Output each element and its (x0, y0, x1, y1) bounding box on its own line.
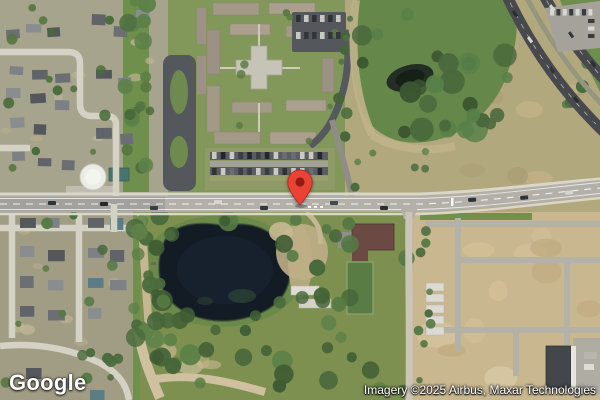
tree-canopy (371, 28, 383, 40)
parked-car (328, 32, 333, 39)
dirt-patch (145, 57, 154, 64)
tree-canopy (274, 365, 293, 384)
tree-canopy (424, 309, 432, 317)
tree-canopy (165, 230, 176, 241)
parked-car (247, 152, 252, 159)
parked-car (588, 9, 592, 16)
tree-canopy (86, 348, 95, 357)
car (520, 195, 528, 200)
parked-car (296, 15, 301, 22)
tree-canopy (41, 217, 53, 229)
tree-canopy (118, 79, 133, 94)
tree-canopy (502, 72, 513, 83)
tree-canopy (69, 211, 77, 219)
tree-canopy (156, 295, 170, 309)
parked-car (265, 152, 270, 159)
tree-canopy (411, 79, 427, 95)
car (330, 201, 338, 205)
tree-canopy (457, 122, 474, 139)
house-roof (9, 66, 23, 75)
car (380, 206, 388, 210)
parked-car (221, 152, 226, 159)
tree-canopy (362, 361, 379, 378)
tree-canopy (146, 106, 155, 115)
parked-car (563, 9, 567, 16)
tree-canopy (124, 109, 135, 120)
parked-car (556, 9, 560, 16)
tree-canopy (105, 355, 117, 367)
satellite-map[interactable]: Google Imagery ©2025 Airbus, Maxar Techn… (0, 0, 600, 400)
tree-canopy (416, 248, 426, 258)
house-roof (20, 246, 34, 257)
tree-canopy (7, 34, 18, 45)
tree-canopy (490, 108, 504, 122)
tree-canopy (96, 65, 106, 75)
house-roof (96, 128, 112, 139)
dirt-patch (489, 280, 508, 301)
dirt-patch (438, 344, 466, 357)
tree-canopy (140, 81, 151, 92)
tree-canopy (105, 16, 114, 25)
tree-canopy (148, 240, 164, 256)
tree-canopy (107, 260, 118, 271)
tree-canopy (321, 315, 336, 330)
tree-canopy (28, 4, 36, 12)
tree-canopy (421, 226, 431, 236)
parked-car (274, 152, 279, 159)
tree-canopy (9, 164, 17, 172)
house-roof (88, 278, 104, 288)
tree-canopy (236, 122, 243, 129)
parked-car (238, 168, 243, 175)
tree-canopy (287, 250, 299, 262)
tree-canopy (352, 25, 372, 45)
parked-car (336, 32, 341, 39)
tree-canopy (237, 70, 246, 79)
tree-canopy (165, 358, 181, 374)
parked-car (304, 32, 309, 39)
parked-car (312, 15, 317, 22)
house-roof (20, 306, 34, 317)
tree-canopy (351, 183, 360, 192)
tree-canopy (426, 288, 433, 295)
vertical-road (409, 212, 410, 400)
house-roof (26, 24, 42, 33)
parked-car (320, 15, 325, 22)
tree-canopy (90, 149, 96, 155)
tree-canopy (342, 217, 355, 230)
tree-canopy (290, 214, 302, 226)
tree-canopy (126, 328, 145, 347)
tree-canopy (315, 293, 330, 308)
tree-canopy (240, 325, 251, 336)
tree-canopy (369, 150, 376, 157)
tree-canopy (410, 118, 434, 142)
tree-canopy (327, 104, 333, 110)
tree-canopy (97, 245, 107, 255)
tree-canopy (421, 165, 429, 173)
parked-car (312, 32, 317, 39)
tree-canopy (46, 76, 53, 83)
tree-canopy (466, 108, 480, 122)
tree-canopy (53, 85, 63, 95)
tree-canopy (131, 223, 148, 240)
tree-canopy (128, 303, 139, 314)
car (565, 190, 573, 195)
parked-car (569, 9, 573, 16)
parked-car (256, 152, 261, 159)
tree-canopy (398, 126, 411, 139)
pin-body (288, 170, 312, 205)
tree-canopy (421, 238, 430, 247)
imagery-attribution: Imagery ©2025 Airbus, Maxar Technologies (364, 383, 596, 397)
tree-canopy (39, 16, 48, 25)
house-roof (88, 218, 104, 228)
tree-canopy (145, 330, 164, 349)
parked-car (300, 152, 305, 159)
tree-canopy (138, 158, 153, 173)
tree-canopy (164, 333, 177, 346)
tree-canopy (459, 53, 480, 74)
tree-canopy (261, 345, 272, 356)
tree-canopy (338, 59, 344, 65)
map-pin-icon[interactable] (287, 169, 313, 206)
tree-canopy (420, 340, 428, 348)
tree-canopy (43, 265, 50, 272)
tree-canopy (180, 344, 201, 365)
tree-canopy (341, 107, 353, 119)
tree-canopy (275, 235, 293, 253)
tree-canopy (119, 14, 137, 32)
tree-canopy (329, 229, 342, 242)
tree-canopy (99, 110, 110, 121)
dirt-patch (32, 263, 42, 269)
parked-car (309, 152, 314, 159)
house-roof (10, 117, 25, 128)
tree-canopy (322, 342, 333, 353)
loop-road-lot (163, 55, 196, 191)
tree-canopy (354, 159, 361, 166)
parked-car (212, 152, 217, 159)
tree-canopy (411, 163, 419, 171)
tree-canopy (422, 148, 429, 155)
house-roof (120, 133, 133, 145)
house-roof (6, 88, 21, 98)
house-roof (55, 100, 70, 110)
parked-car (230, 168, 235, 175)
parked-car (328, 15, 333, 22)
house-roof (34, 124, 47, 135)
tree-canopy (149, 350, 164, 365)
house-roof (20, 276, 34, 288)
tree-canopy (340, 45, 350, 55)
tree-canopy (332, 297, 347, 312)
dirt-patch (507, 167, 528, 184)
dirt-patch (30, 136, 42, 141)
parked-car (221, 168, 226, 175)
pin-inner-dot (295, 177, 304, 186)
tree-canopy (343, 35, 350, 42)
house-roof (12, 152, 25, 161)
tree-canopy (47, 28, 55, 36)
tree-canopy (134, 32, 152, 50)
tree-canopy (32, 147, 40, 155)
tree-canopy (335, 332, 346, 343)
tree-canopy (426, 75, 444, 93)
parked-car (320, 32, 325, 39)
dirt-patch (516, 101, 543, 118)
tree-canopy (15, 321, 21, 327)
tree-canopy (240, 60, 248, 68)
tree-canopy (235, 348, 252, 365)
tree-canopy (159, 313, 175, 329)
house-roof (90, 390, 105, 400)
car (150, 206, 158, 210)
tree-canopy (333, 93, 344, 104)
dirt-patch (459, 164, 485, 178)
tree-canopy (340, 131, 350, 141)
house-roof (30, 93, 46, 104)
tree-canopy (347, 352, 357, 362)
tree-canopy (357, 57, 369, 69)
tree-canopy (309, 260, 325, 276)
tree-canopy (132, 248, 145, 261)
parked-car (256, 168, 261, 175)
house-roof (88, 308, 101, 319)
parked-car (318, 168, 323, 175)
parked-car (247, 168, 252, 175)
parked-car (296, 32, 301, 39)
house-roof (20, 218, 36, 228)
tree-canopy (219, 216, 230, 227)
house-roof (38, 158, 52, 166)
parked-car (265, 168, 270, 175)
tree-canopy (3, 97, 14, 108)
car (214, 200, 222, 204)
dirt-patch (201, 360, 221, 369)
parked-car (238, 152, 243, 159)
tree-canopy (493, 43, 517, 67)
tree-canopy (414, 326, 424, 336)
house-roof (62, 160, 75, 170)
dirt-patch (532, 259, 562, 283)
tree-canopy (273, 296, 285, 308)
parked-car (274, 168, 279, 175)
tree-canopy (250, 310, 261, 321)
house-roof (92, 14, 106, 25)
house-roof (32, 70, 48, 80)
dirt-patch (0, 128, 10, 134)
car (100, 202, 108, 206)
car (468, 198, 476, 202)
tree-canopy (401, 8, 414, 21)
parked-car (212, 168, 217, 175)
tree-canopy (306, 138, 313, 145)
dirt-patch (530, 239, 562, 258)
tree-canopy (286, 14, 292, 20)
tree-canopy (143, 270, 153, 280)
tree-canopy (59, 310, 67, 318)
tree-canopy (438, 53, 459, 74)
parked-car (304, 15, 309, 22)
tree-canopy (296, 291, 309, 304)
tree-canopy (195, 378, 206, 389)
house-roof (48, 250, 65, 261)
parked-car (318, 152, 323, 159)
house-roof (55, 73, 70, 83)
tree-canopy (439, 120, 451, 132)
tree-canopy (121, 144, 132, 155)
tree-canopy (137, 14, 151, 28)
tree-canopy (347, 16, 353, 22)
parked-car (588, 19, 595, 23)
tree-canopy (179, 307, 195, 323)
google-logo[interactable]: Google (9, 370, 87, 396)
car (260, 206, 268, 210)
car (48, 201, 56, 205)
parked-car (336, 15, 341, 22)
tree-canopy (341, 235, 359, 253)
parked-car (588, 34, 595, 38)
tree-canopy (107, 374, 114, 381)
parked-car (576, 9, 580, 16)
tree-canopy (70, 85, 77, 92)
tree-canopy (199, 342, 215, 358)
tree-canopy (140, 71, 151, 82)
dirt-patch (463, 242, 495, 258)
tree-canopy (426, 319, 436, 329)
parked-car (588, 27, 595, 31)
house-roof (48, 280, 64, 291)
parked-car (230, 152, 235, 159)
parked-car (282, 152, 287, 159)
tree-canopy (319, 371, 338, 390)
parked-car (291, 152, 296, 159)
parked-car (582, 9, 586, 16)
tree-canopy (210, 325, 220, 335)
tree-canopy (84, 296, 94, 306)
tree-canopy (419, 95, 437, 113)
house-roof (110, 280, 127, 290)
